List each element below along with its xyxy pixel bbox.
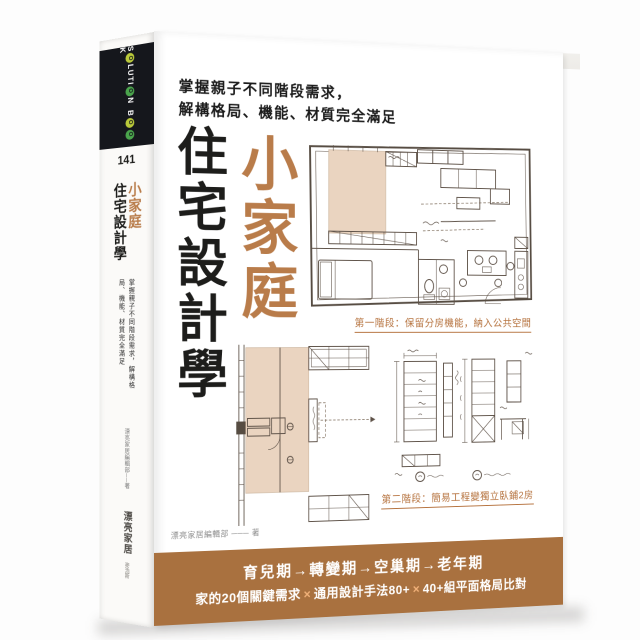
logo-o-icon: O (125, 129, 134, 140)
logo-letter: K (118, 47, 126, 55)
spine-title-main: 小家庭 (127, 181, 141, 263)
multiply-sign: × (410, 581, 423, 596)
plan2-caption: 第二階段：簡易工程變獨立臥鋪2房 (375, 487, 540, 509)
multiply-sign: × (301, 587, 314, 602)
cover-tagline: 掌握親子不同階段需求， 解構格局、機能、材質完全滿足 (179, 76, 397, 129)
logo-letters: LUTI (126, 63, 134, 86)
plan1-caption: 第一階段：保留分房機能，納入公共空間 (348, 315, 537, 332)
logo-o-icon: O (125, 86, 134, 97)
book-mockup-scene: SOLUTIONBOOK 141 小家庭 住宅設計學 掌握親子不同階段需求，解構… (0, 0, 640, 640)
logo-letter: N (126, 97, 134, 105)
book-spine: SOLUTIONBOOK 141 小家庭 住宅設計學 掌握親子不同階段需求，解構… (100, 32, 154, 628)
banner-line2-part1: 家的20個關鍵需求 (195, 587, 300, 607)
spine-subtitle: 掌握親子不同階段需求，解構格局、機能、材質完全滿足 (117, 279, 137, 394)
plan1-caption-text: 第一階段：保留分房機能，納入公共空間 (355, 315, 532, 332)
spine-series-number: 141 (118, 152, 136, 168)
spine-author: 漂亮家居編輯部──著 (122, 428, 130, 497)
spine-publisher-imprint: 麥浩斯 (123, 562, 130, 579)
cabinet-elevation-drawings (389, 348, 533, 488)
logo-letter: S (126, 45, 134, 53)
logo-letter: B (126, 110, 133, 118)
spine-title-rest: 住宅設計學 (112, 182, 126, 263)
spine-title: 小家庭 住宅設計學 (112, 181, 141, 263)
cover-title-rest: 住宅設計學 (172, 124, 223, 453)
spine-series-logo-band: SOLUTIONBOOK (100, 42, 154, 150)
plan2-caption-text: 第二階段：簡易工程變獨立臥鋪2房 (382, 488, 534, 510)
cover-author-line: 漂亮家居編輯部 ─── 著 (171, 527, 260, 541)
banner-line2-part2: 通用設計手法80+ (314, 582, 410, 601)
logo-o-icon: O (125, 117, 134, 128)
book: SOLUTIONBOOK 141 小家庭 住宅設計學 掌握親子不同階段需求，解構… (92, 26, 592, 632)
logo-o-icon: O (125, 53, 134, 64)
spine-publisher: 漂亮家居 (120, 510, 133, 555)
banner-line2-part3: 40+組平面格局比對 (423, 577, 527, 596)
floor-plan-2-drawing (230, 342, 380, 528)
book-front-cover: 掌握親子不同階段需求， 解構格局、機能、材質完全滿足 小家庭 住宅設計學 (154, 31, 563, 626)
solution-book-logo: SOLUTIONBOOK (118, 45, 134, 148)
floor-plan-1-drawing (303, 133, 535, 311)
